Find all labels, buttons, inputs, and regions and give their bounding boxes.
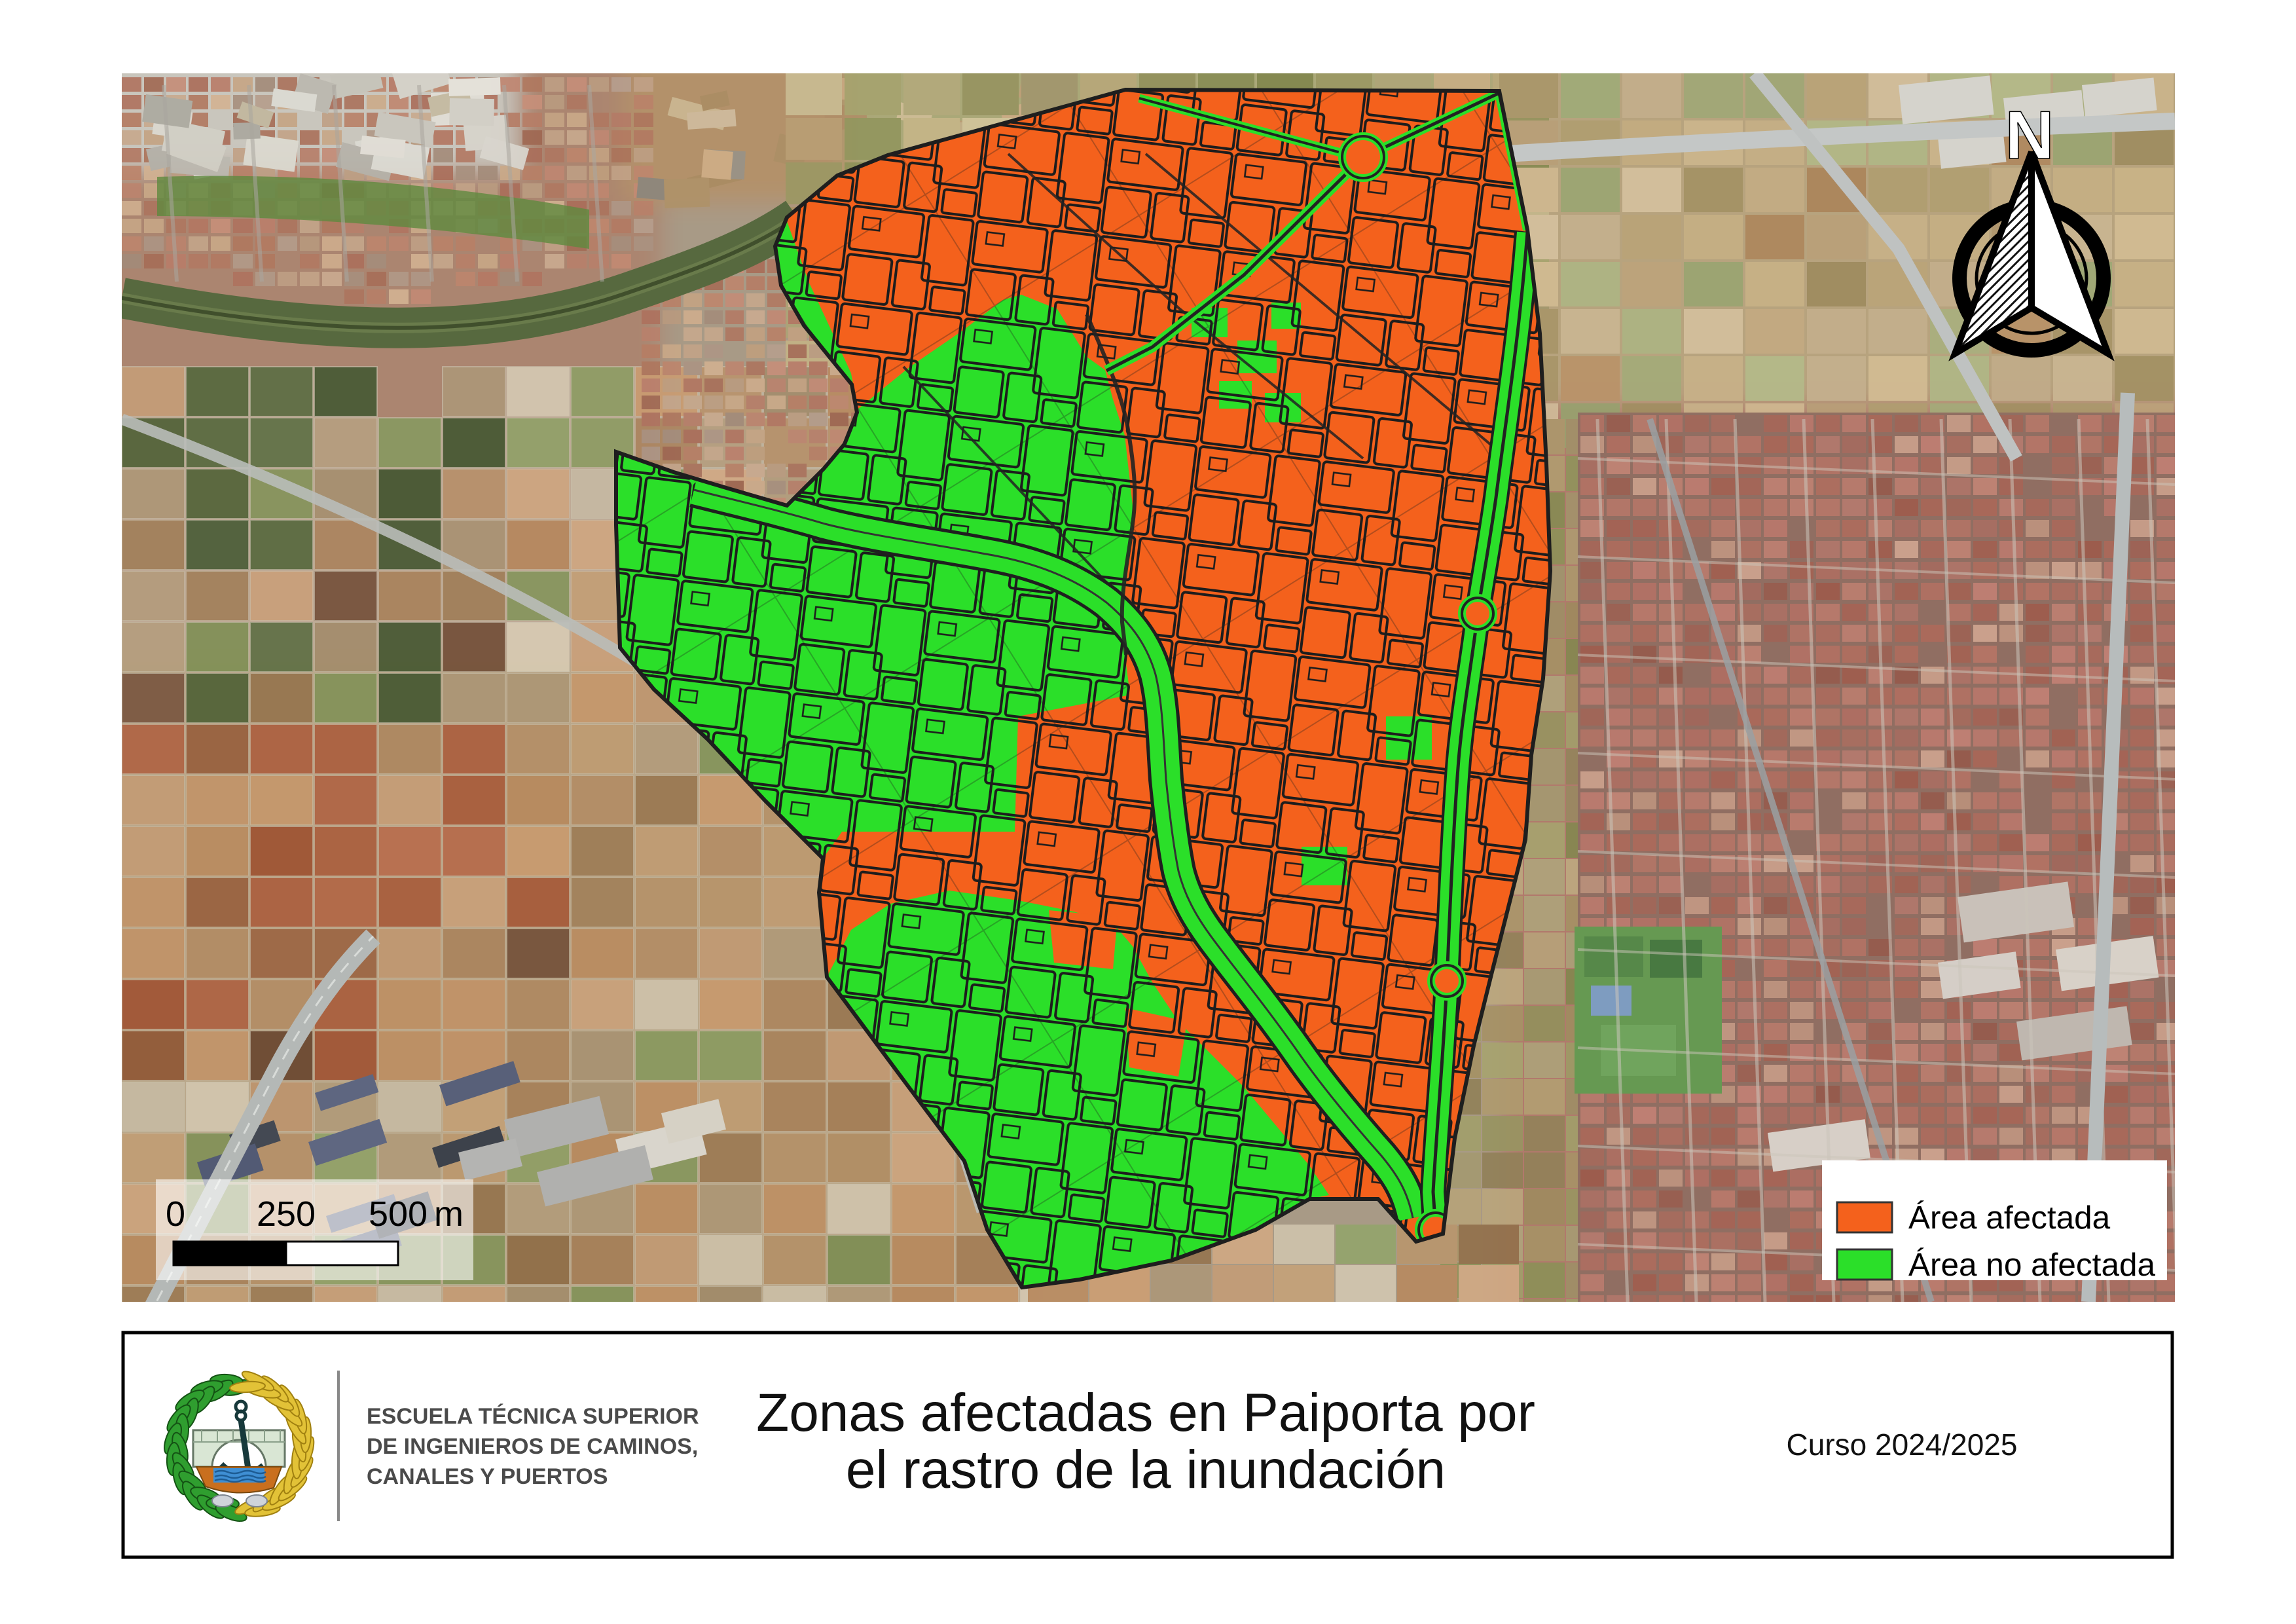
- svg-text:el rastro de la inundación: el rastro de la inundación: [846, 1440, 1446, 1500]
- svg-text:Zonas afectadas en Paiporta po: Zonas afectadas en Paiporta por: [756, 1383, 1535, 1443]
- svg-text:CANALES Y PUERTOS: CANALES Y PUERTOS: [367, 1464, 608, 1489]
- svg-text:N: N: [2005, 98, 2054, 174]
- svg-text:Curso 2024/2025: Curso 2024/2025: [1787, 1428, 2018, 1462]
- svg-text:250: 250: [257, 1194, 316, 1234]
- svg-text:ESCUELA TÉCNICA SUPERIOR: ESCUELA TÉCNICA SUPERIOR: [367, 1404, 699, 1429]
- svg-text:m: m: [434, 1194, 464, 1234]
- svg-text:500: 500: [369, 1194, 428, 1234]
- svg-text:DE INGENIEROS DE CAMINOS,: DE INGENIEROS DE CAMINOS,: [367, 1434, 698, 1459]
- svg-text:0: 0: [166, 1194, 185, 1234]
- svg-text:Área no afectada: Área no afectada: [1908, 1247, 2155, 1283]
- svg-text:Área afectada: Área afectada: [1908, 1200, 2111, 1236]
